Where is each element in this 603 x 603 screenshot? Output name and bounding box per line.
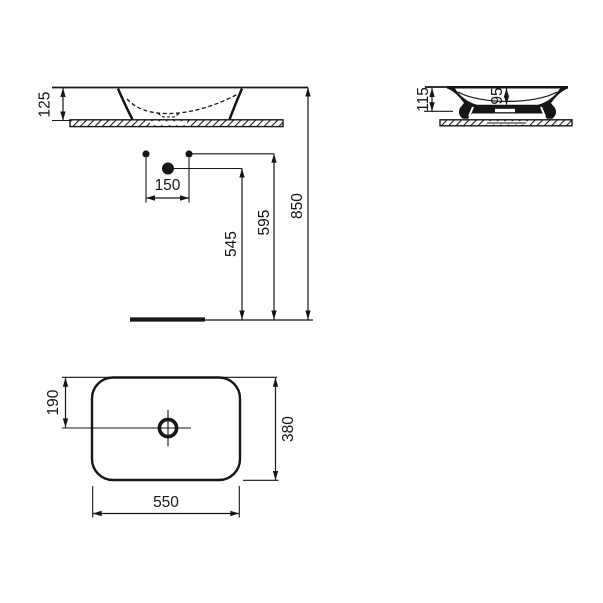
arrowhead <box>305 88 310 97</box>
dimension-rim-height: 850 <box>289 88 311 320</box>
arrowhead <box>60 112 65 121</box>
basin-left-wall <box>118 89 133 120</box>
dim-label-tap-spacing: 150 <box>155 177 181 194</box>
dimension-supply-height: 595 <box>256 154 277 320</box>
dim-label-rim-height: 850 <box>289 193 306 219</box>
arrowhead <box>271 311 276 320</box>
dim-label-width: 550 <box>153 494 179 511</box>
supply-point-left <box>142 150 149 157</box>
dimension-drain-offset: 190 <box>45 378 68 428</box>
countertop-drain-cutout <box>150 121 187 125</box>
arrowhead <box>146 195 155 200</box>
arrowhead <box>63 378 68 387</box>
dimension-basin-height: 125 <box>36 88 70 121</box>
dim-label-depth: 380 <box>280 416 297 442</box>
dim-label-drain-height: 545 <box>223 231 240 257</box>
basin-right-wall <box>230 89 243 120</box>
dimension-drain-height: 545 <box>223 169 245 320</box>
arrowhead <box>271 154 276 163</box>
drain-slot <box>495 109 515 112</box>
dim-label-basin-height: 125 <box>36 92 53 118</box>
dimension-bowl-depth: 95 <box>489 87 509 104</box>
arrowhead <box>239 169 244 178</box>
dimension-total-height: 115 <box>415 87 453 112</box>
basin-dimension-drawing: 125 115 95 <box>0 0 603 603</box>
arrowhead <box>273 378 278 387</box>
arrowhead <box>239 311 244 320</box>
side-section-view: 115 95 <box>415 86 572 126</box>
dim-label-total-height: 115 <box>415 87 432 112</box>
dim-label-drain-offset: 190 <box>45 389 62 415</box>
arrowhead <box>180 195 189 200</box>
arrowhead <box>63 418 68 427</box>
technical-drawing-sheet: 125 115 95 <box>0 0 603 603</box>
dim-label-bowl-depth: 95 <box>489 87 506 104</box>
drain-hidden-detail <box>158 114 179 118</box>
arrowhead <box>273 471 278 480</box>
arrowhead <box>93 511 102 516</box>
arrowhead <box>305 311 310 320</box>
bowl-hidden-profile <box>127 95 237 114</box>
dimension-depth: 380 <box>243 378 297 481</box>
arrowhead <box>60 88 65 97</box>
basin-outline <box>92 378 240 481</box>
dimension-width: 550 <box>93 486 240 518</box>
arrowhead <box>230 511 239 516</box>
plan-view: 190 380 550 <box>45 377 297 517</box>
front-elevation-view: 125 <box>36 88 308 127</box>
dim-label-supply-height: 595 <box>256 210 273 236</box>
